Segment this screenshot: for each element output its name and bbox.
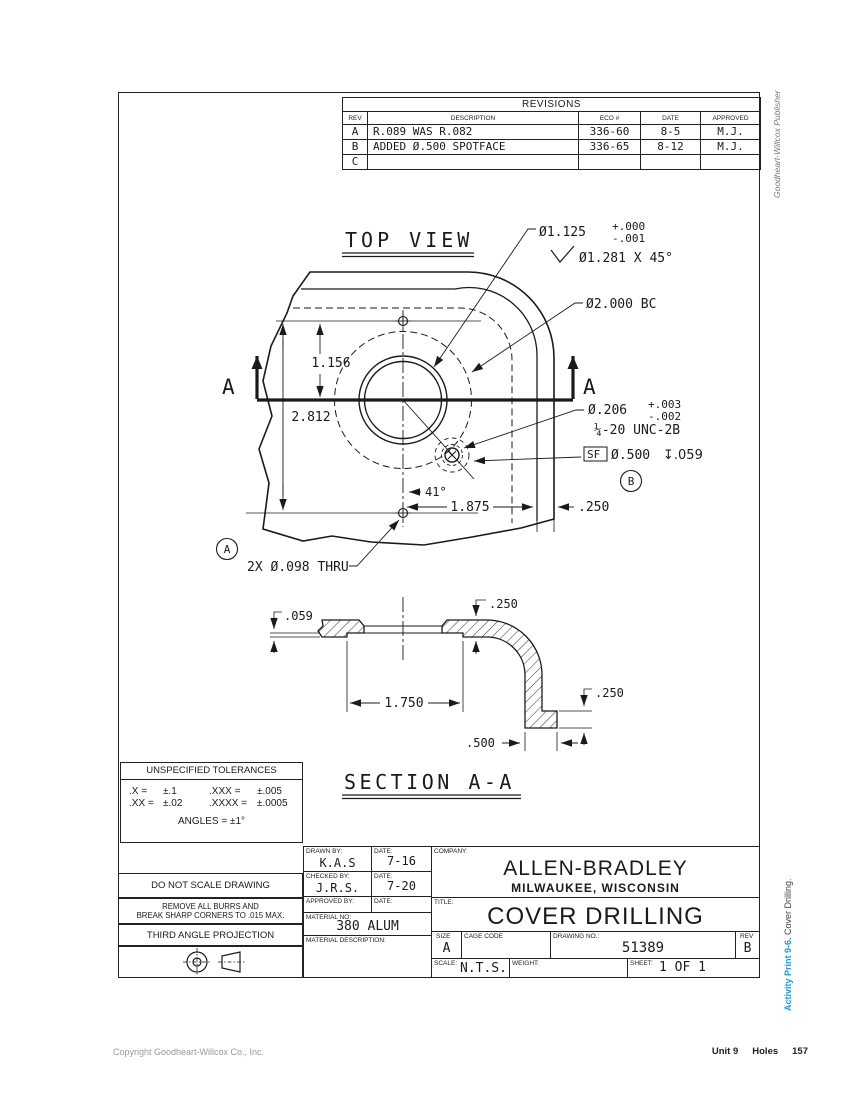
cell-title: TITLE: COVER DRILLING bbox=[431, 897, 760, 932]
revision-row-a-description: R.089 WAS R.082 bbox=[368, 125, 579, 140]
revisions-col-rev: REV bbox=[343, 112, 368, 125]
revisions-col-approved: APPROVED bbox=[701, 112, 761, 125]
approved-date-label: DATE: bbox=[374, 898, 393, 905]
revision-row-b-description: ADDED Ø.500 SPOTFACE bbox=[368, 140, 579, 155]
footer-copyright: Copyright Goodheart-Willcox Co., Inc. bbox=[113, 1047, 264, 1057]
company-city: MILWAUKEE, WISCONSIN bbox=[432, 881, 759, 895]
revision-row-a-approved: M.J. bbox=[701, 125, 761, 140]
rev-label: REV bbox=[740, 933, 753, 940]
cut-letter-right: A bbox=[583, 375, 596, 399]
svg-text:1.156: 1.156 bbox=[311, 356, 350, 371]
cell-weight: WEIGHT: bbox=[509, 958, 628, 978]
drawing-views-svg: TOP VIEW bbox=[118, 168, 760, 848]
tol-xxx-value: ±.005 bbox=[257, 786, 303, 798]
publisher-side-text: Goodheart-Willcox Publisher bbox=[772, 40, 784, 198]
third-angle-projection-icon bbox=[119, 947, 302, 977]
chamfer-callout: Ø1.281 X 45° bbox=[551, 246, 673, 266]
tol-x-value: ±.1 bbox=[163, 786, 209, 798]
svg-text:Ø.206: Ø.206 bbox=[588, 403, 627, 418]
revision-row-a-eco: 336-60 bbox=[579, 125, 641, 140]
tol-xx-value: ±.02 bbox=[163, 798, 209, 810]
tol-xxxx-label: .XXXX = bbox=[209, 798, 257, 810]
svg-text:.250: .250 bbox=[578, 500, 609, 515]
top-view-label: TOP VIEW bbox=[345, 228, 473, 252]
note-burrs-line2: BREAK SHARP CORNERS TO .015 MAX. bbox=[137, 911, 285, 921]
checked-by-value: J.R.S. bbox=[304, 881, 371, 895]
holes-note: 2X Ø.098 THRU bbox=[247, 520, 399, 575]
cell-cage-code: CAGE CODE bbox=[461, 931, 551, 959]
drawn-by-label: DRAWN BY: bbox=[306, 848, 342, 855]
footer-page-number: 157 bbox=[792, 1046, 808, 1057]
svg-text:2X Ø.098 THRU: 2X Ø.098 THRU bbox=[247, 560, 349, 575]
dim-059: .059 bbox=[270, 609, 320, 653]
revisions-col-eco: ECO # bbox=[579, 112, 641, 125]
note-do-not-scale: DO NOT SCALE DRAWING bbox=[118, 873, 303, 898]
cell-drawn-date: DATE: 7-16 bbox=[371, 846, 432, 872]
tapped-hole bbox=[435, 438, 469, 472]
svg-text:Ø2.000 BC: Ø2.000 BC bbox=[586, 297, 656, 312]
tol-xxx-label: .XXX = bbox=[209, 786, 257, 798]
weight-label: WEIGHT: bbox=[512, 960, 539, 967]
svg-text:2.812: 2.812 bbox=[291, 410, 330, 425]
angle-dim: 41° bbox=[409, 485, 447, 499]
section-view: .059 .250 1.750 .250 bbox=[270, 597, 624, 799]
revision-row-a-rev: A bbox=[343, 125, 368, 140]
dim-500: .500 bbox=[466, 732, 578, 751]
chamfer-symbol-icon bbox=[551, 246, 574, 262]
svg-text:1.750: 1.750 bbox=[384, 696, 423, 711]
svg-text:.250: .250 bbox=[489, 597, 518, 611]
activity-side-text: Activity Print 9-6. Cover Drilling. bbox=[783, 833, 796, 1011]
svg-text:Ø1.281 X 45°: Ø1.281 X 45° bbox=[579, 251, 673, 266]
part-flange-inner bbox=[301, 288, 537, 521]
dim-250-right: .250 bbox=[558, 500, 609, 515]
part-outline-outer bbox=[259, 272, 554, 545]
dim-250-foot: .250 bbox=[559, 686, 624, 745]
svg-text:¼-20 UNC-2B: ¼-20 UNC-2B bbox=[594, 423, 680, 438]
drawn-date-value: 7-16 bbox=[372, 854, 431, 868]
svg-text:.059: .059 bbox=[284, 609, 313, 623]
drawing-no-label: DRAWING NO.: bbox=[553, 933, 599, 940]
revisions-col-description: DESCRIPTION bbox=[368, 112, 579, 125]
revision-row-b-date: 8-12 bbox=[641, 140, 701, 155]
revisions-grid: REV DESCRIPTION ECO # DATE APPROVED A R.… bbox=[342, 111, 761, 170]
rev-value: B bbox=[736, 941, 759, 956]
dim-1-156: 1.156 bbox=[311, 324, 350, 397]
section-view-label: SECTION A-A bbox=[344, 770, 515, 794]
note-third-angle: THIRD ANGLE PROJECTION bbox=[118, 924, 303, 946]
svg-text:-.001: -.001 bbox=[612, 232, 645, 245]
cell-checked-date: DATE: 7-20 bbox=[371, 871, 432, 897]
cell-material-description: MATERIAL DESCRIPTION: bbox=[303, 935, 432, 978]
note-burrs-line1: REMOVE ALL BURRS AND bbox=[137, 902, 285, 912]
scale-value: N.T.S. bbox=[460, 961, 507, 976]
cell-checked-by: CHECKED BY: J.R.S. bbox=[303, 871, 372, 897]
revisions-title: REVISIONS bbox=[342, 97, 761, 111]
checked-date-value: 7-20 bbox=[372, 879, 431, 893]
company-name: ALLEN-BRADLEY bbox=[432, 857, 759, 881]
revisions-col-date: DATE bbox=[641, 112, 701, 125]
title-label: TITLE: bbox=[434, 899, 454, 906]
tol-xxxx-value: ±.0005 bbox=[257, 798, 303, 810]
scale-label: SCALE: bbox=[434, 960, 457, 967]
cell-rev: REV B bbox=[735, 931, 760, 959]
section-right-piece bbox=[442, 620, 557, 728]
revision-row-b-eco: 336-65 bbox=[579, 140, 641, 155]
approved-by-label: APPROVED BY: bbox=[306, 898, 354, 905]
cell-company: COMPANY: ALLEN-BRADLEY MILWAUKEE, WISCON… bbox=[431, 846, 760, 898]
dim-1-750: 1.750 bbox=[347, 641, 463, 712]
note-burrs: REMOVE ALL BURRS AND BREAK SHARP CORNERS… bbox=[118, 898, 303, 924]
size-label: SIZE bbox=[436, 933, 450, 940]
tolerances-title: UNSPECIFIED TOLERANCES bbox=[121, 763, 302, 780]
svg-text:↧.059: ↧.059 bbox=[663, 448, 703, 463]
material-description-label: MATERIAL DESCRIPTION: bbox=[306, 937, 386, 944]
cell-size: SIZE A bbox=[431, 931, 462, 959]
bolt-circle-callout: Ø2.000 BC bbox=[472, 297, 656, 372]
projection-symbol-box bbox=[118, 946, 303, 978]
footer-unit: Unit 9 bbox=[712, 1046, 738, 1057]
svg-text:Ø.500: Ø.500 bbox=[611, 448, 650, 463]
top-view-underline bbox=[342, 253, 474, 257]
svg-text:SF: SF bbox=[587, 448, 600, 461]
footer-page-info: Unit 9 Holes 157 bbox=[688, 1046, 808, 1057]
activity-print-number: Activity Print 9-6. bbox=[783, 937, 793, 1011]
svg-text:-.002: -.002 bbox=[648, 410, 681, 423]
svg-text:B: B bbox=[628, 475, 635, 488]
top-view: TOP VIEW bbox=[217, 220, 703, 575]
section-label-underline bbox=[342, 795, 521, 799]
drawing-sheet-page: REVISIONS REV DESCRIPTION ECO # DATE APP… bbox=[0, 0, 862, 1100]
svg-text:.250: .250 bbox=[595, 686, 624, 700]
cage-code-label: CAGE CODE bbox=[464, 933, 503, 940]
svg-text:Ø1.125: Ø1.125 bbox=[539, 225, 586, 240]
drawn-by-value: K.A.S bbox=[304, 856, 371, 870]
material-no-value: 380 ALUM bbox=[304, 919, 431, 934]
spotface-callout: SF Ø.500 ↧.059 B bbox=[474, 447, 703, 492]
revision-row-b-approved: M.J. bbox=[701, 140, 761, 155]
tap-callout: Ø.206 +.003 -.002 ¼-20 UNC-2B bbox=[464, 398, 681, 448]
svg-text:41°: 41° bbox=[425, 485, 447, 499]
drawing-no-value: 51389 bbox=[551, 940, 735, 956]
section-left-piece bbox=[318, 620, 364, 637]
tolerances-angles: ANGLES = ±1° bbox=[121, 816, 302, 827]
tol-x-label: .X = bbox=[129, 786, 163, 798]
cell-approved-date: DATE: bbox=[371, 896, 432, 913]
cell-drawn-by: DRAWN BY: K.A.S bbox=[303, 846, 372, 872]
cell-approved-by: APPROVED BY: bbox=[303, 896, 372, 913]
footer-section: Holes bbox=[752, 1046, 778, 1057]
revision-row-a-date: 8-5 bbox=[641, 125, 701, 140]
activity-print-title: Cover Drilling. bbox=[783, 878, 793, 937]
angled-centerline bbox=[403, 400, 474, 479]
sheet-label: SHEET: bbox=[630, 960, 653, 967]
cell-material-no: MATERIAL NO: 380 ALUM bbox=[303, 912, 432, 936]
sheet-value: 1 OF 1 bbox=[659, 960, 706, 975]
revision-row-b-rev: B bbox=[343, 140, 368, 155]
balloon-a-letter: A bbox=[224, 543, 231, 556]
cell-scale: SCALE: N.T.S. bbox=[431, 958, 510, 978]
dim-2-812: 2.812 bbox=[283, 324, 331, 510]
size-value: A bbox=[432, 941, 461, 956]
svg-text:1.875: 1.875 bbox=[450, 500, 489, 515]
cut-letter-left: A bbox=[222, 375, 235, 399]
cell-drawing-no: DRAWING NO.: 51389 bbox=[550, 931, 736, 959]
cell-sheet: SHEET: 1 OF 1 bbox=[627, 958, 760, 978]
revisions-table: REVISIONS REV DESCRIPTION ECO # DATE APP… bbox=[342, 97, 761, 170]
checked-by-label: CHECKED BY: bbox=[306, 873, 350, 880]
company-label: COMPANY: bbox=[434, 848, 468, 855]
tolerances-values: .X = ±.1 .XXX = ±.005 .XX = ±.02 .XXXX =… bbox=[121, 780, 302, 810]
svg-text:.500: .500 bbox=[466, 736, 495, 750]
tol-xx-label: .XX = bbox=[129, 798, 163, 810]
drawing-title: COVER DRILLING bbox=[432, 903, 759, 931]
tolerances-block: UNSPECIFIED TOLERANCES .X = ±.1 .XXX = ±… bbox=[120, 762, 303, 843]
